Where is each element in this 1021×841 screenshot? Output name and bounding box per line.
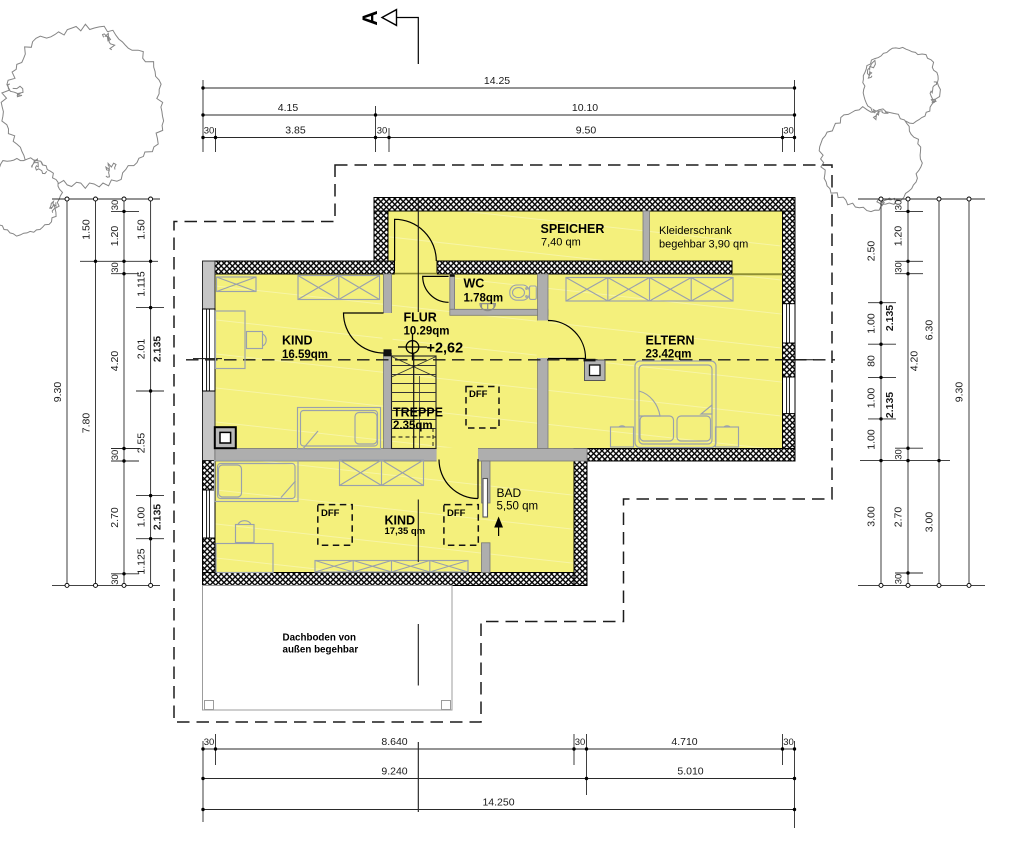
svg-text:1.00: 1.00 bbox=[866, 388, 878, 409]
svg-text:80: 80 bbox=[866, 355, 878, 367]
svg-text:2.01: 2.01 bbox=[136, 339, 148, 360]
svg-text:DFF: DFF bbox=[447, 508, 466, 519]
svg-text:3.85: 3.85 bbox=[285, 125, 306, 137]
svg-text:16.59qm: 16.59qm bbox=[282, 349, 328, 361]
svg-text:8.640: 8.640 bbox=[381, 736, 407, 748]
svg-text:A: A bbox=[359, 10, 382, 25]
svg-text:7,40 qm: 7,40 qm bbox=[541, 237, 581, 249]
svg-text:5,50 qm: 5,50 qm bbox=[497, 501, 539, 513]
svg-text:Dachboden von: Dachboden von bbox=[283, 633, 356, 644]
svg-text:1.20: 1.20 bbox=[109, 226, 121, 247]
svg-text:TREPPE: TREPPE bbox=[393, 406, 443, 420]
svg-text:10.29qm: 10.29qm bbox=[404, 326, 450, 338]
svg-text:ELTERN: ELTERN bbox=[646, 334, 695, 348]
svg-text:30: 30 bbox=[377, 126, 388, 137]
svg-text:4.15: 4.15 bbox=[278, 102, 299, 114]
svg-text:BAD: BAD bbox=[497, 486, 522, 500]
svg-text:3.00: 3.00 bbox=[924, 512, 936, 533]
svg-text:23.42qm: 23.42qm bbox=[646, 349, 692, 361]
svg-text:30: 30 bbox=[894, 449, 905, 460]
svg-text:30: 30 bbox=[204, 126, 215, 137]
svg-text:1.50: 1.50 bbox=[81, 219, 93, 240]
svg-text:2.55: 2.55 bbox=[136, 433, 148, 454]
svg-text:4.710: 4.710 bbox=[671, 736, 697, 748]
svg-text:30: 30 bbox=[894, 262, 905, 273]
svg-text:30: 30 bbox=[783, 737, 794, 748]
svg-text:2.135: 2.135 bbox=[152, 336, 164, 362]
svg-text:30: 30 bbox=[204, 737, 215, 748]
svg-text:1.50: 1.50 bbox=[136, 219, 148, 240]
svg-text:9.30: 9.30 bbox=[52, 382, 64, 403]
svg-text:2.135: 2.135 bbox=[152, 504, 164, 530]
svg-text:2.135: 2.135 bbox=[884, 392, 896, 418]
svg-text:14.250: 14.250 bbox=[482, 797, 514, 809]
svg-text:2.135: 2.135 bbox=[884, 305, 896, 331]
svg-text:1.00: 1.00 bbox=[866, 429, 878, 450]
svg-text:30: 30 bbox=[783, 126, 794, 137]
svg-text:2.70: 2.70 bbox=[893, 507, 905, 528]
svg-text:+2,62: +2,62 bbox=[427, 341, 464, 357]
svg-text:30: 30 bbox=[110, 262, 121, 273]
svg-text:WC: WC bbox=[464, 277, 485, 291]
svg-text:4.20: 4.20 bbox=[909, 351, 921, 372]
svg-text:2.70: 2.70 bbox=[109, 507, 121, 528]
svg-text:6.30: 6.30 bbox=[924, 320, 936, 341]
svg-text:30: 30 bbox=[894, 574, 905, 585]
svg-text:30: 30 bbox=[575, 737, 586, 748]
svg-text:14.25: 14.25 bbox=[484, 75, 510, 87]
svg-text:1.00: 1.00 bbox=[866, 313, 878, 334]
svg-text:Kleiderschrank: Kleiderschrank bbox=[659, 225, 732, 237]
svg-text:30: 30 bbox=[110, 450, 121, 461]
svg-text:2.35qm: 2.35qm bbox=[393, 420, 433, 432]
svg-text:30: 30 bbox=[110, 200, 121, 211]
svg-text:1.00: 1.00 bbox=[136, 507, 148, 528]
svg-text:9.30: 9.30 bbox=[954, 382, 966, 403]
svg-text:KIND: KIND bbox=[282, 334, 313, 348]
svg-text:1.125: 1.125 bbox=[136, 548, 148, 574]
svg-text:5.010: 5.010 bbox=[677, 766, 703, 778]
svg-text:7.80: 7.80 bbox=[81, 413, 93, 434]
svg-text:9.50: 9.50 bbox=[576, 125, 597, 137]
svg-text:DFF: DFF bbox=[469, 389, 488, 400]
svg-text:1.115: 1.115 bbox=[136, 271, 148, 297]
svg-text:17,35 qm: 17,35 qm bbox=[385, 526, 426, 537]
svg-text:FLUR: FLUR bbox=[404, 311, 437, 325]
svg-text:2.50: 2.50 bbox=[866, 241, 878, 262]
svg-text:1.78qm: 1.78qm bbox=[464, 293, 504, 305]
svg-text:3.00: 3.00 bbox=[866, 506, 878, 527]
svg-text:SPEICHER: SPEICHER bbox=[541, 222, 605, 236]
svg-text:30: 30 bbox=[110, 574, 121, 585]
svg-text:9.240: 9.240 bbox=[381, 766, 407, 778]
svg-text:außen begehbar: außen begehbar bbox=[283, 645, 359, 656]
svg-text:1.20: 1.20 bbox=[893, 226, 905, 247]
svg-text:DFF: DFF bbox=[321, 508, 340, 519]
svg-text:4.20: 4.20 bbox=[109, 351, 121, 372]
svg-text:10.10: 10.10 bbox=[572, 102, 598, 114]
svg-text:30: 30 bbox=[894, 200, 905, 211]
svg-text:begehbar 3,90 qm: begehbar 3,90 qm bbox=[659, 239, 748, 251]
